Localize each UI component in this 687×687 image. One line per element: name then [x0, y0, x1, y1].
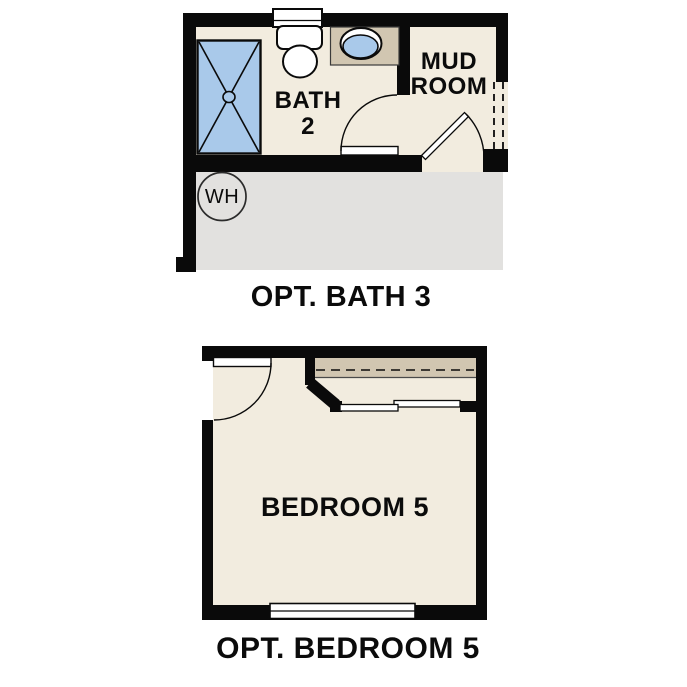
bath-top-wall — [183, 13, 508, 27]
bedroom-floor — [213, 358, 476, 605]
mudroom-corner-wall — [483, 149, 508, 172]
bath-left-wall-nub — [176, 257, 184, 272]
floorplan-page: BATH2 MUDROOM WH OPT. BATH 3 BEDROOM 5 O… — [0, 0, 687, 687]
shower-drain-icon — [223, 92, 235, 103]
sink-basin-icon — [343, 35, 378, 58]
bath-left-wall — [183, 13, 196, 272]
closet-bypass-door-right — [394, 401, 460, 408]
closet-shelf — [313, 358, 476, 378]
closet-bypass-door-left — [340, 405, 398, 412]
opt-bedroom-5-caption: OPT. BEDROOM 5 — [174, 632, 522, 666]
water-heater-label: WH — [196, 186, 248, 208]
bedroom-left-wall-upper — [202, 346, 213, 361]
bedroom-left-wall-lower — [202, 420, 213, 620]
bedroom5-room-label: BEDROOM 5 — [245, 492, 445, 523]
bedroom-top-wall — [202, 346, 487, 358]
bath2-label-line2: 2 — [301, 113, 315, 140]
bath2-label-line1: BATH — [275, 87, 342, 114]
toilet-bowl-icon — [283, 46, 317, 78]
bath-window — [273, 9, 322, 27]
opt-bath-3-caption: OPT. BATH 3 — [176, 281, 506, 314]
opt-bedroom-5-plan — [202, 346, 487, 620]
bath2-room-label: BATH2 — [256, 88, 360, 140]
bedroom-right-wall — [476, 346, 487, 620]
bedroom-door-leaf — [214, 358, 272, 367]
mudroom-label: MUDROOM — [399, 49, 499, 99]
closet-right-jamb — [460, 401, 476, 412]
mudroom-label-line2: ROOM — [411, 73, 488, 100]
bath-door-leaf — [341, 147, 398, 156]
bath-bottom-wall — [196, 155, 422, 172]
mudroom-label-line1: MUD — [421, 48, 477, 75]
